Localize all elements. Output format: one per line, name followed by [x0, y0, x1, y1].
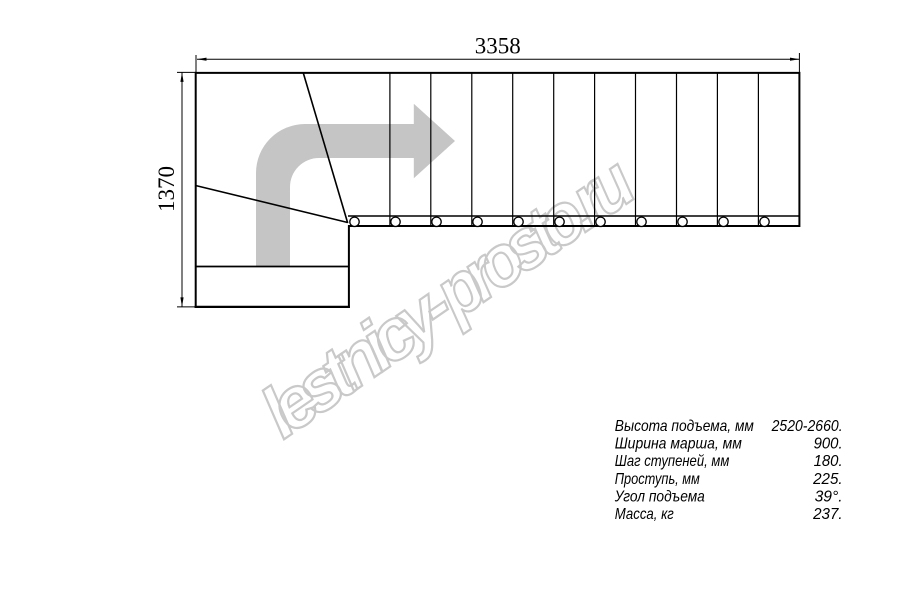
svg-text:2520-2660.: 2520-2660.	[771, 418, 843, 435]
svg-text:225.: 225.	[812, 471, 842, 488]
svg-text:237.: 237.	[812, 506, 842, 523]
svg-text:lestnicy-: lestnicy-	[247, 267, 467, 453]
svg-text:1370: 1370	[154, 166, 179, 212]
svg-text:3358: 3358	[475, 34, 521, 59]
svg-text:900.: 900.	[814, 436, 843, 453]
svg-text:180.: 180.	[814, 453, 843, 470]
svg-text:Ширина марша, мм: Ширина марша, мм	[615, 436, 742, 453]
svg-text:39°.: 39°.	[815, 488, 843, 505]
svg-text:Проступь, мм: Проступь, мм	[615, 471, 700, 488]
svg-text:Высота подъема, мм: Высота подъема, мм	[615, 418, 754, 435]
svg-text:Угол подъема: Угол подъема	[614, 488, 705, 505]
svg-text:Шаг ступеней, мм: Шаг ступеней, мм	[615, 453, 730, 470]
svg-text:Масса, кг: Масса, кг	[615, 506, 674, 523]
svg-text:prosto.ru: prosto.ru	[418, 142, 648, 335]
